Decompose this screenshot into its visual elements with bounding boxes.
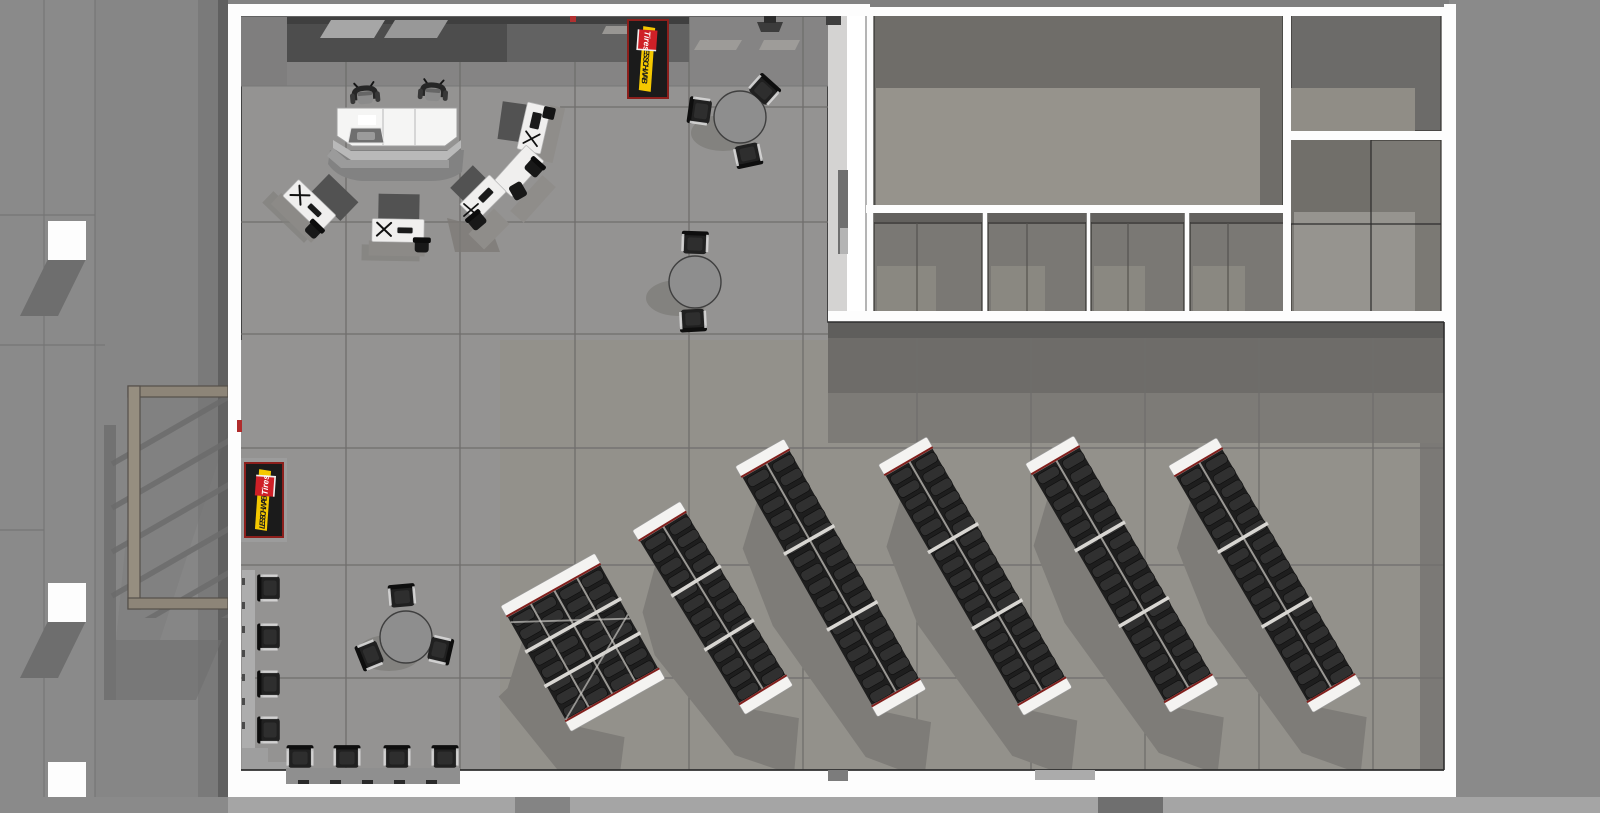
svg-text:Tires: Tires	[260, 474, 271, 495]
svg-text:Tires: Tires	[641, 31, 652, 52]
